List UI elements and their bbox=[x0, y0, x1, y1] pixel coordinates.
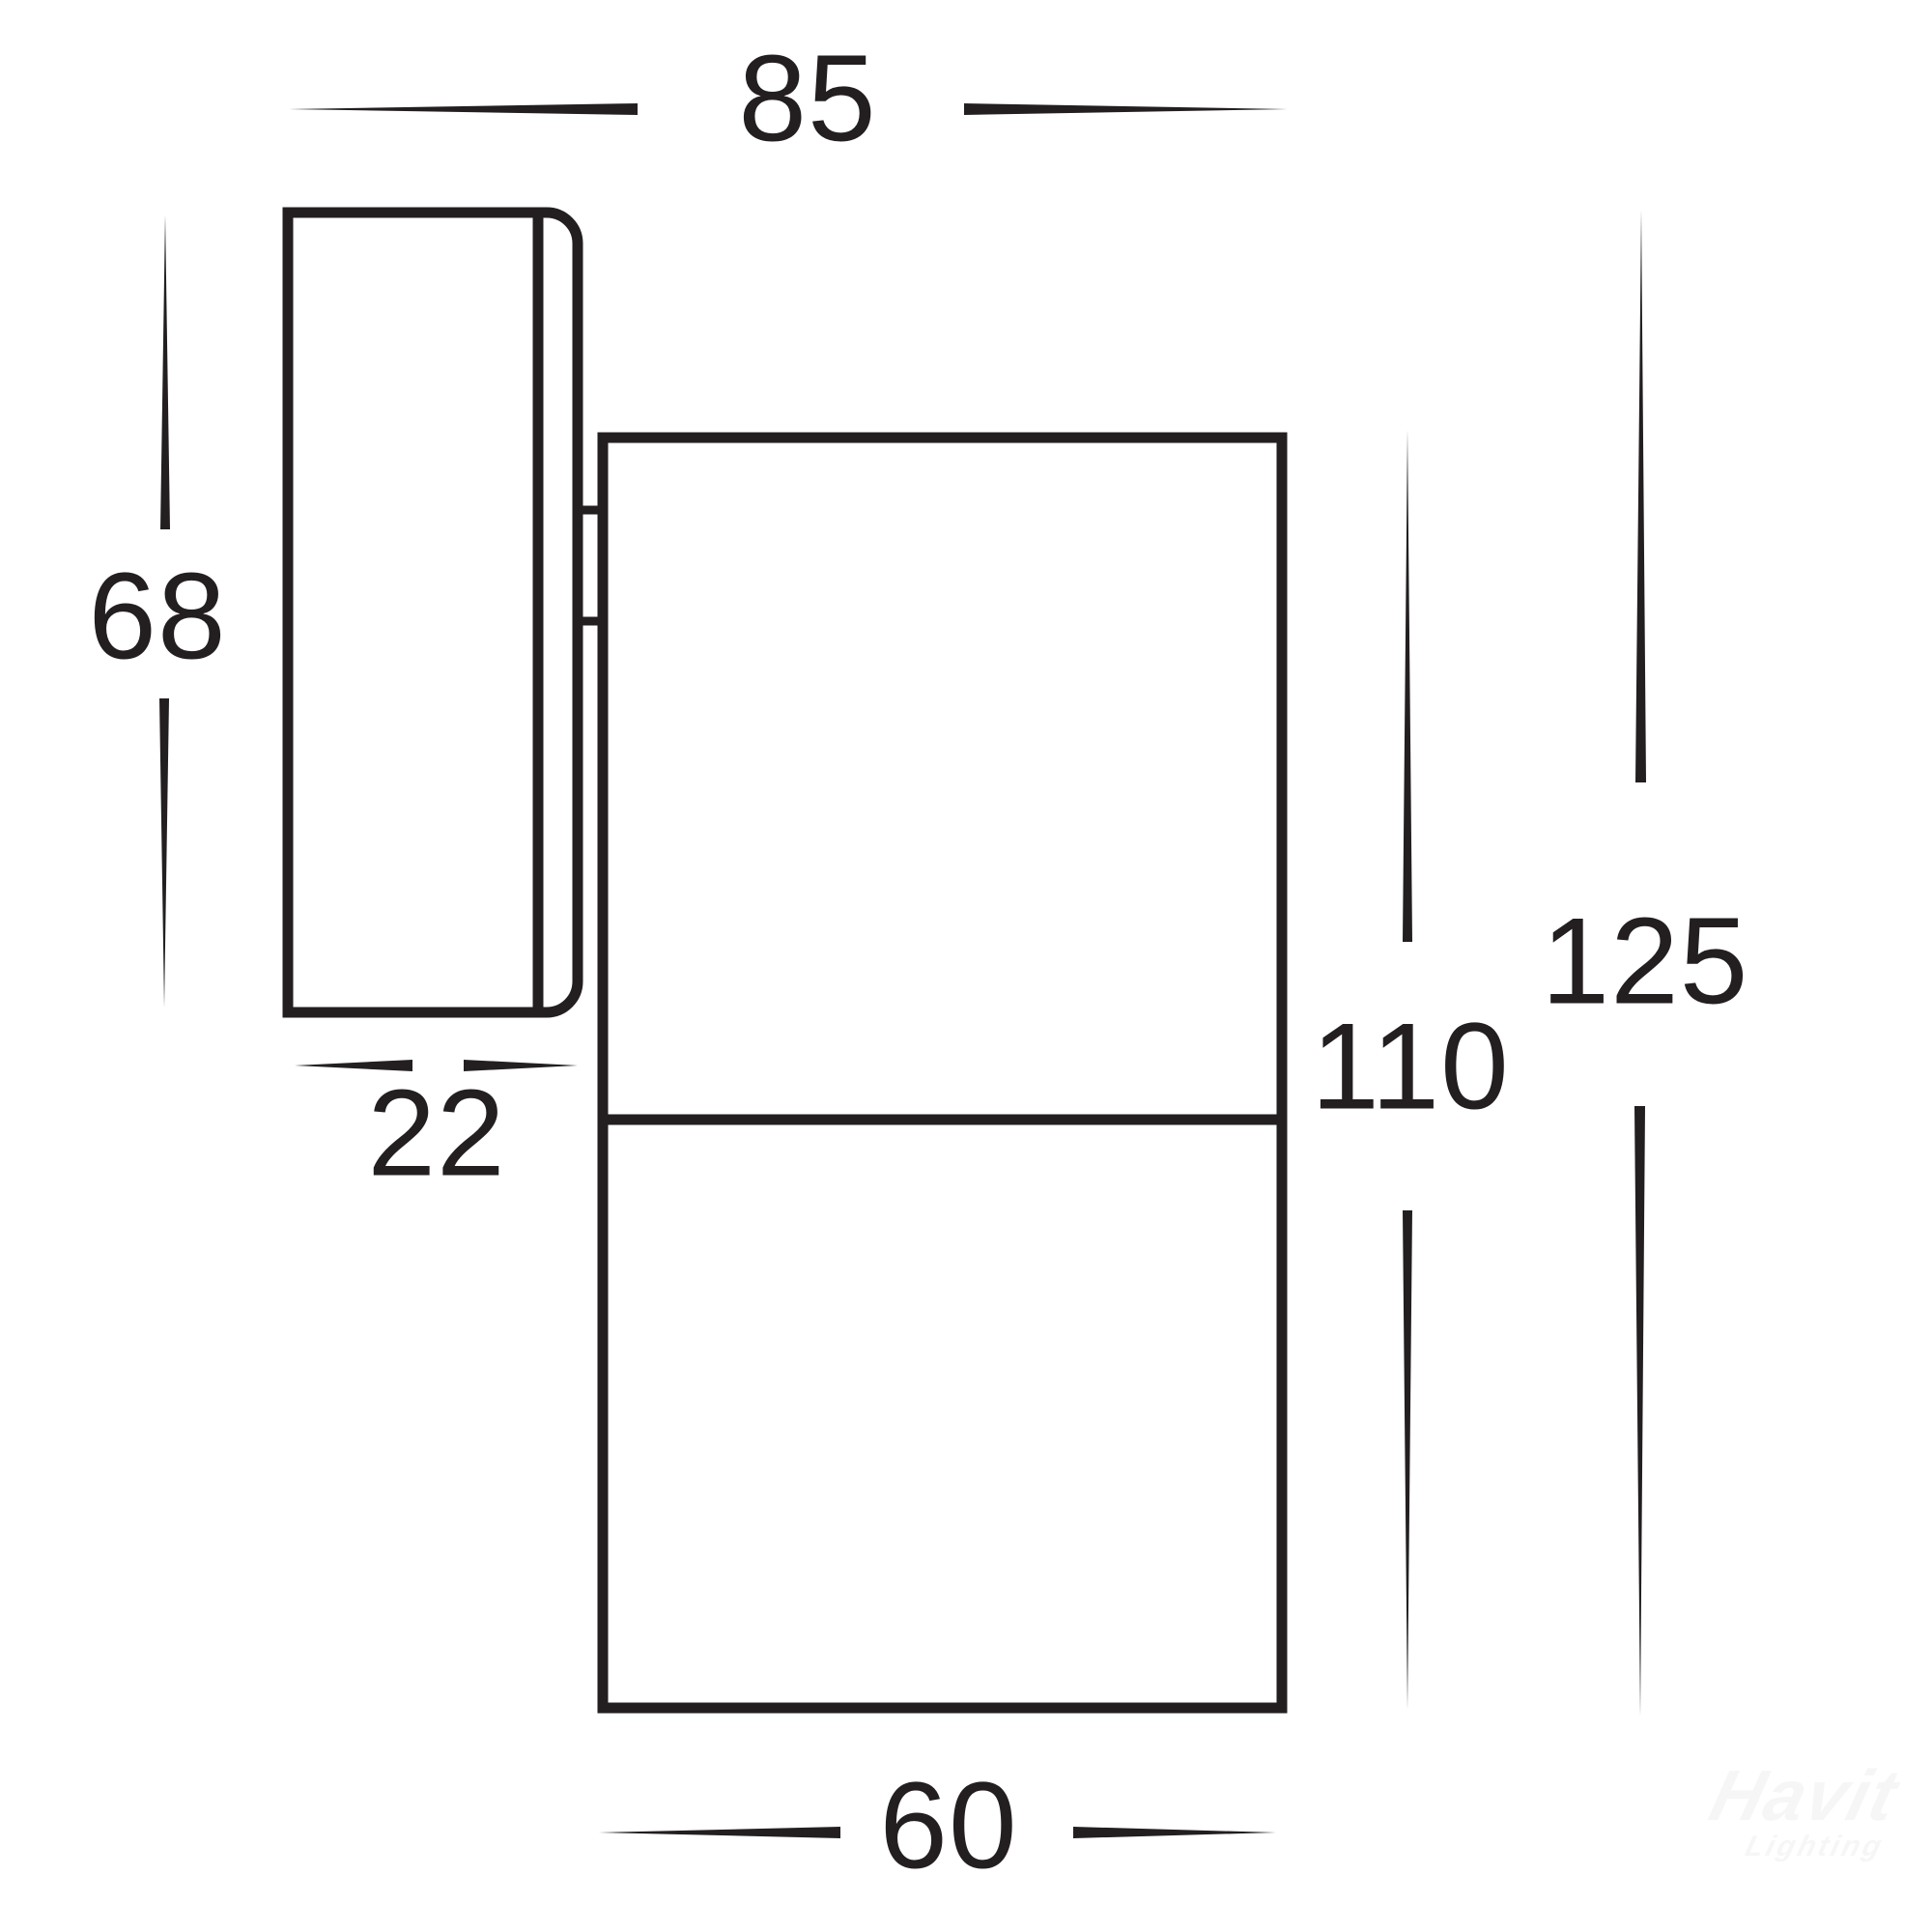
watermark-brand-text: Havit bbox=[1704, 1764, 1905, 1829]
dim-125-upper-line bbox=[1635, 210, 1646, 782]
dim-label-body-height: 110 bbox=[1311, 1006, 1509, 1128]
dim-68-lower-line bbox=[159, 698, 169, 1008]
dim-60-left-line bbox=[599, 1827, 840, 1838]
havit-watermark: Havit Lighting bbox=[1695, 1764, 1905, 1863]
watermark-sub-text: Lighting bbox=[1742, 1831, 1888, 1863]
dim-110-lower-line bbox=[1403, 1210, 1412, 1710]
dim-label-total-height: 125 bbox=[1542, 900, 1749, 1023]
dimension-drawing-canvas: 85 68 22 110 125 60 Havit Lighting bbox=[0, 0, 1932, 1932]
dim-110-upper-line bbox=[1403, 430, 1412, 942]
dim-85-right-line bbox=[964, 103, 1288, 115]
fixture-body-outline bbox=[603, 438, 1282, 1708]
dim-68-upper-line bbox=[160, 214, 170, 529]
dim-label-plate-height: 68 bbox=[88, 555, 226, 678]
dim-125-lower-line bbox=[1634, 1106, 1645, 1717]
dim-85-left-line bbox=[289, 103, 638, 115]
dim-label-plate-depth: 22 bbox=[367, 1072, 505, 1195]
dim-label-body-width: 60 bbox=[879, 1765, 1017, 1888]
dim-label-top-width: 85 bbox=[738, 38, 876, 160]
dim-60-right-line bbox=[1073, 1827, 1276, 1838]
